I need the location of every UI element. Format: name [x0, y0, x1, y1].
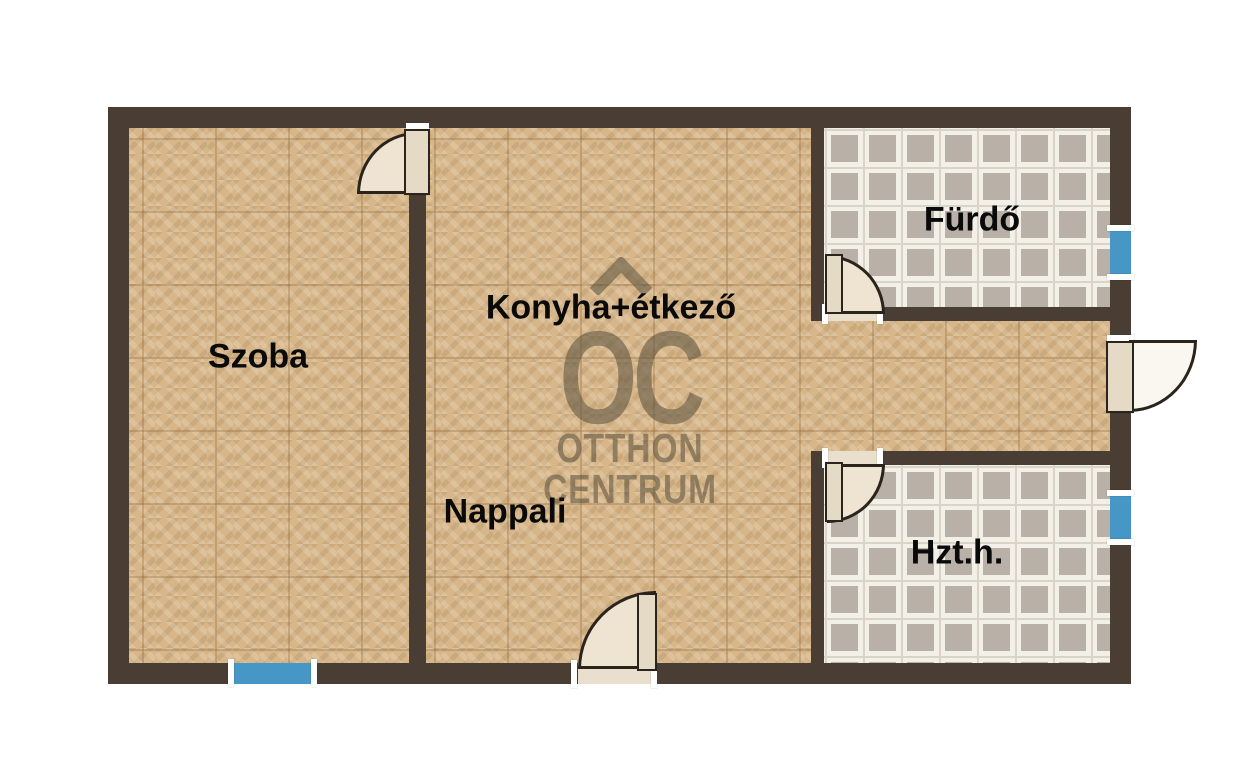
wall-exterior-left: [108, 107, 129, 684]
wall-utility-left: [811, 451, 824, 663]
window-szoba-cap-left: [228, 659, 234, 687]
wall-bathroom-bottom: [880, 307, 1110, 321]
wall-exterior-right-lower: [1110, 409, 1131, 684]
door-leaf-szoba: [404, 129, 430, 195]
logo-centrum: CENTRUM: [543, 469, 717, 510]
room-label-hzth: Hzt.h.: [911, 534, 1004, 573]
window-utility-cap-top: [1107, 490, 1134, 496]
window-utility-cap-bottom: [1107, 539, 1134, 545]
floor-plan: OC OTTHON CENTRUM: [0, 0, 1260, 760]
room-label-konyha: Konyha+étkező: [486, 289, 736, 328]
window-bathroom-cap-bottom: [1107, 274, 1134, 280]
wall-utility-top: [880, 451, 1110, 465]
wall-exterior-top: [108, 107, 1131, 128]
door-leaf-utility: [825, 462, 843, 522]
wall-szoba-divider: [409, 191, 426, 663]
window-bathroom: [1110, 231, 1131, 274]
door-leaf-entrance: [1106, 341, 1134, 413]
window-szoba: [234, 663, 311, 684]
room-label-furdo: Fürdő: [924, 201, 1020, 240]
door-leaf-nappali: [637, 593, 657, 671]
room-label-szoba: Szoba: [208, 338, 308, 377]
logo-otthon: OTTHON: [557, 428, 704, 469]
window-utility: [1110, 496, 1131, 539]
window-szoba-cap-right: [311, 659, 317, 687]
room-label-nappali: Nappali: [444, 493, 567, 532]
wall-bathroom-left: [811, 128, 824, 321]
door-arc-entrance: [1129, 340, 1197, 412]
window-bathroom-cap-top: [1107, 225, 1134, 231]
door-leaf-bathroom: [825, 254, 843, 314]
door-nappali-cap-left: [571, 660, 577, 688]
